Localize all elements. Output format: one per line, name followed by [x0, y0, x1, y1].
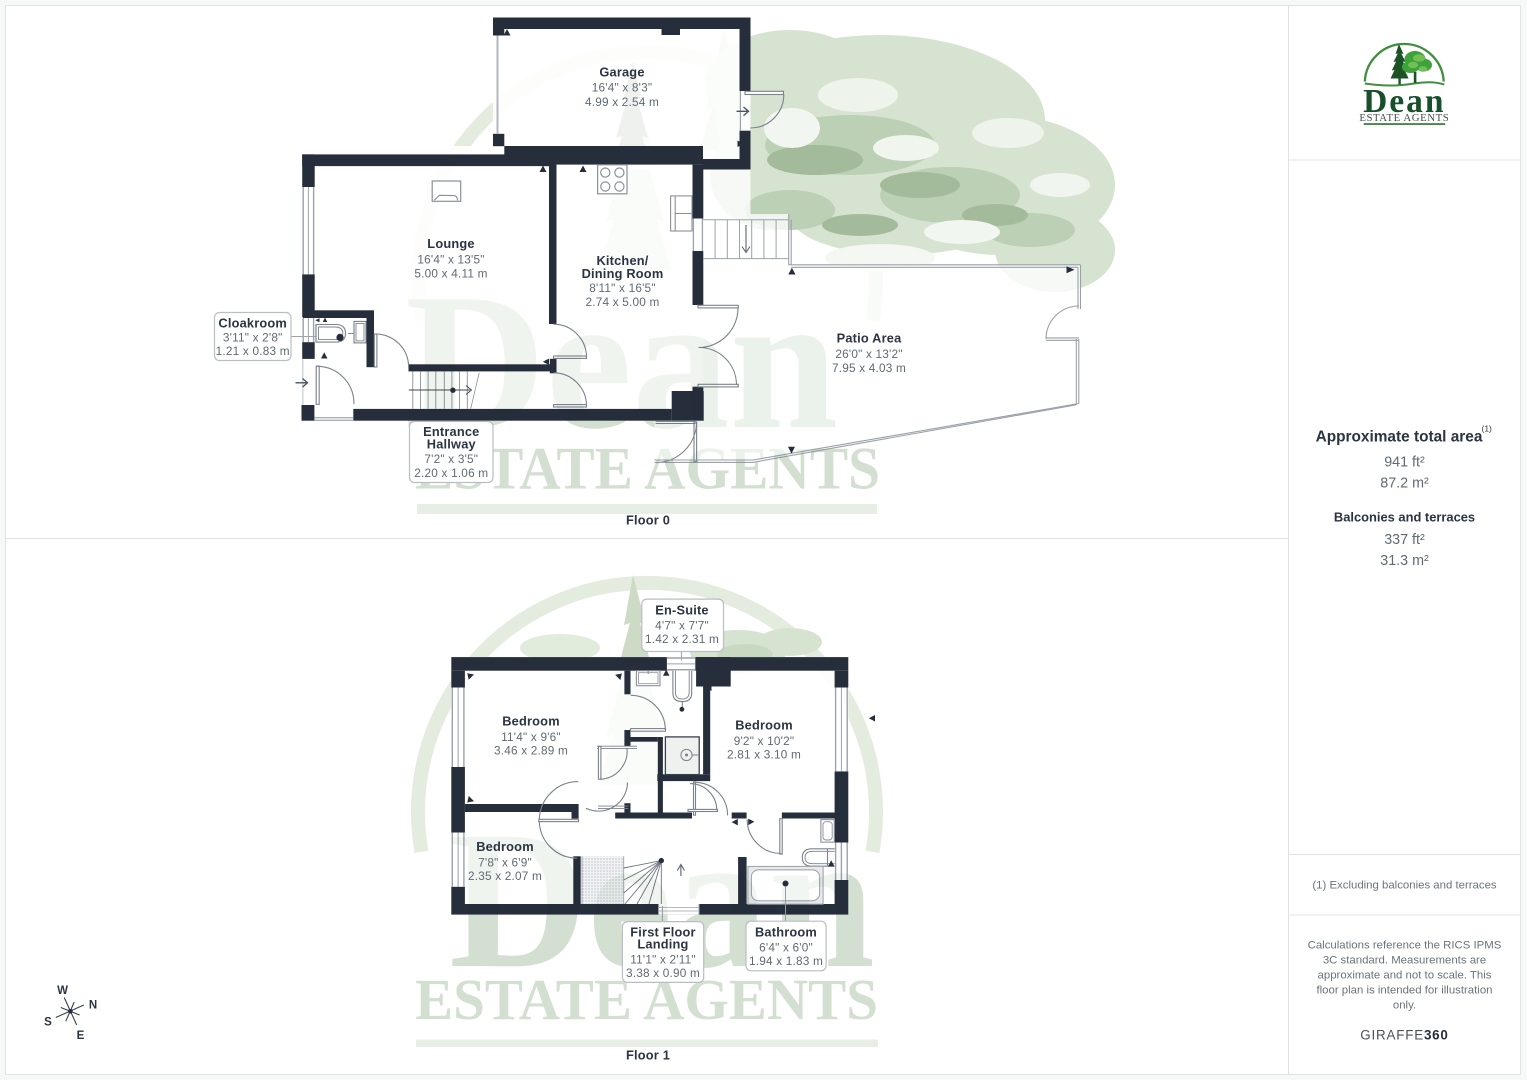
svg-text:9'2" x 10'2": 9'2" x 10'2"	[734, 734, 795, 748]
svg-text:26'0" x 13'2": 26'0" x 13'2"	[835, 347, 902, 361]
svg-text:only.: only.	[1393, 1000, 1416, 1012]
svg-text:2.35 x 2.07 m: 2.35 x 2.07 m	[468, 869, 542, 883]
svg-text:W: W	[57, 985, 68, 997]
svg-text:7.95 x 4.03 m: 7.95 x 4.03 m	[832, 361, 906, 375]
svg-text:Cloakroom: Cloakroom	[218, 315, 287, 330]
svg-text:941 ft²: 941 ft²	[1384, 455, 1425, 471]
svg-text:Approximate total area: Approximate total area	[1316, 429, 1483, 446]
svg-text:2.81 x 3.10 m: 2.81 x 3.10 m	[727, 747, 801, 761]
svg-text:4'7" x 7'7": 4'7" x 7'7"	[655, 618, 709, 632]
svg-text:3C standard. Measurements are: 3C standard. Measurements are	[1323, 955, 1486, 967]
svg-text:3'11" x 2'8": 3'11" x 2'8"	[223, 330, 283, 344]
svg-text:7'2" x 3'5": 7'2" x 3'5"	[424, 452, 478, 466]
svg-text:2.20 x 1.06 m: 2.20 x 1.06 m	[414, 466, 488, 480]
svg-text:87.2 m²: 87.2 m²	[1380, 476, 1429, 492]
svg-text:Calculations reference the RIC: Calculations reference the RICS IPMS	[1308, 940, 1502, 952]
svg-text:1.94 x 1.83 m: 1.94 x 1.83 m	[749, 954, 823, 968]
svg-text:4.99 x 2.54 m: 4.99 x 2.54 m	[585, 95, 659, 109]
svg-text:Bathroom: Bathroom	[755, 925, 817, 940]
svg-text:8'11" x 16'5": 8'11" x 16'5"	[589, 281, 655, 295]
svg-text:11'1" x 2'11": 11'1" x 2'11"	[630, 952, 696, 966]
svg-text:Floor 1: Floor 1	[626, 1048, 670, 1063]
svg-text:N: N	[89, 1000, 97, 1012]
svg-text:Landing: Landing	[637, 937, 688, 952]
svg-text:3.46 x 2.89 m: 3.46 x 2.89 m	[494, 743, 568, 757]
svg-text:Bedroom: Bedroom	[735, 717, 793, 732]
svg-text:1.42 x 2.31 m: 1.42 x 2.31 m	[645, 632, 719, 646]
svg-text:Balconies and terraces: Balconies and terraces	[1334, 510, 1475, 525]
svg-text:Bedroom: Bedroom	[502, 713, 560, 728]
svg-text:11'4" x 9'6": 11'4" x 9'6"	[501, 730, 561, 744]
svg-text:3.38 x 0.90 m: 3.38 x 0.90 m	[626, 966, 700, 980]
svg-text:Floor 0: Floor 0	[626, 513, 670, 528]
svg-text:Lounge: Lounge	[427, 236, 474, 251]
svg-text:Patio Area: Patio Area	[837, 330, 903, 345]
svg-text:337 ft²: 337 ft²	[1384, 532, 1425, 548]
svg-text:En-Suite: En-Suite	[655, 602, 709, 617]
svg-text:6'4" x 6'0": 6'4" x 6'0"	[759, 941, 813, 955]
svg-text:E: E	[77, 1030, 85, 1042]
svg-text:floor plan is intended for ill: floor plan is intended for illustration	[1316, 985, 1492, 997]
svg-text:ESTATE AGENTS: ESTATE AGENTS	[1359, 112, 1449, 124]
svg-text:GIRAFFE360: GIRAFFE360	[1360, 1028, 1448, 1043]
svg-text:(1): (1)	[1482, 424, 1493, 434]
svg-text:16'4" x 8'3": 16'4" x 8'3"	[592, 81, 653, 95]
svg-text:2.74 x 5.00 m: 2.74 x 5.00 m	[585, 295, 659, 309]
svg-text:Garage: Garage	[599, 65, 644, 80]
svg-text:approximate and not to scale.: approximate and not to scale. This	[1318, 970, 1492, 982]
svg-text:(1) Excluding balconies and te: (1) Excluding balconies and terraces	[1312, 880, 1497, 892]
svg-text:7'8" x 6'9": 7'8" x 6'9"	[478, 855, 532, 869]
svg-text:Dining Room: Dining Room	[582, 266, 664, 281]
svg-text:5.00 x 4.11 m: 5.00 x 4.11 m	[414, 266, 487, 280]
svg-text:31.3 m²: 31.3 m²	[1380, 553, 1429, 569]
svg-text:Hallway: Hallway	[427, 436, 477, 451]
svg-text:S: S	[44, 1017, 52, 1029]
svg-text:Bedroom: Bedroom	[476, 839, 534, 854]
svg-text:1.21 x 0.83 m: 1.21 x 0.83 m	[216, 344, 290, 358]
svg-text:16'4" x 13'5": 16'4" x 13'5"	[417, 252, 484, 266]
